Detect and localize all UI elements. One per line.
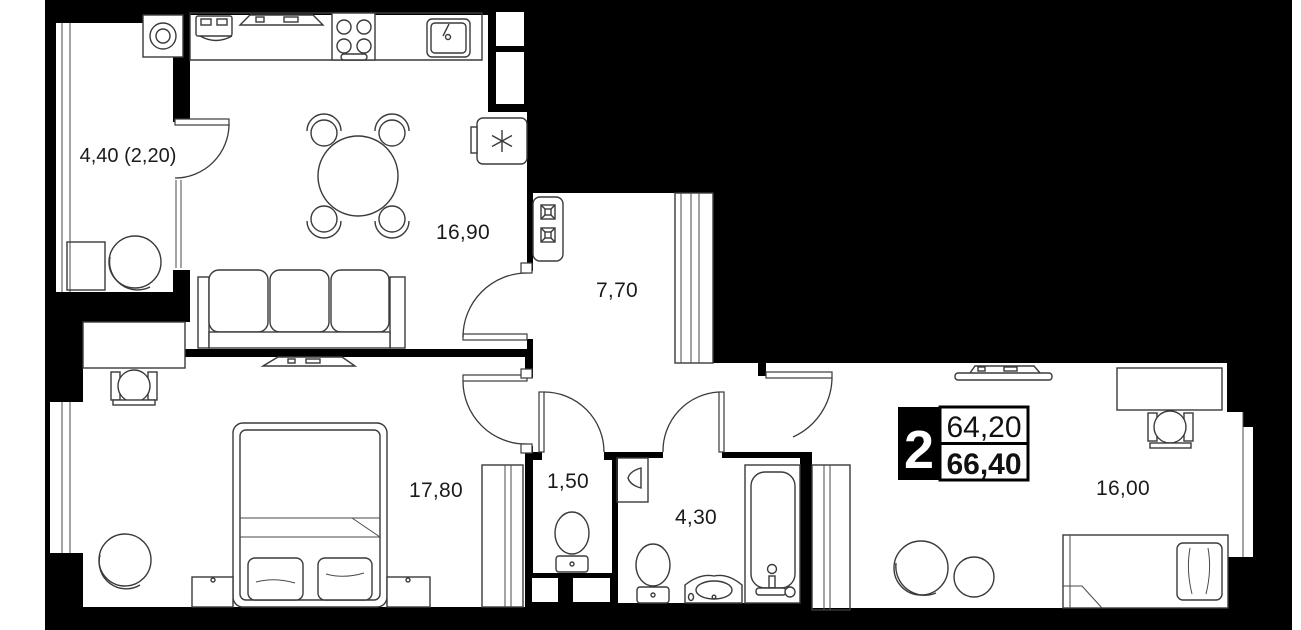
duct-niche-1 — [496, 12, 524, 46]
pillow-icon — [318, 558, 372, 600]
bathroom-door-leaf — [719, 392, 724, 452]
toilet-tank — [637, 587, 669, 603]
sofa-arm-right — [390, 277, 405, 348]
dining-chair-icon — [379, 206, 405, 232]
shaft-opening-right — [573, 578, 610, 602]
pillow-icon — [1177, 543, 1222, 600]
sofa-cushion — [209, 270, 268, 332]
single-bed-icon — [1063, 535, 1228, 608]
oven-handle — [341, 54, 367, 60]
wc-furniture — [555, 512, 589, 572]
bathroom-door-opening — [663, 449, 722, 460]
desk-chair-icon — [111, 370, 157, 405]
toilet-icon — [555, 512, 589, 554]
sofa-arm-left — [198, 277, 209, 348]
chair-seat — [1154, 411, 1186, 443]
balcony-door-leaf — [175, 119, 229, 125]
range-hood-icon — [240, 15, 323, 25]
bedroom2-window-inner — [1227, 412, 1243, 557]
sofa-icon — [198, 270, 405, 348]
balcony-kitchen-wall-bottom — [173, 270, 190, 322]
bedroom1-door-leaf — [463, 375, 527, 381]
tv-bar — [955, 373, 1052, 380]
living-door-opening — [525, 271, 535, 339]
washing-machine-icon — [143, 15, 183, 57]
duct-niche-2 — [496, 52, 524, 104]
desk-chair-icon — [1148, 411, 1193, 448]
shaft-opening-left — [532, 578, 558, 602]
dining-chair-icon — [311, 120, 337, 146]
chair-seat — [118, 370, 150, 402]
wc-door-leaf — [539, 392, 544, 452]
badge-area-bottom: 66,40 — [946, 448, 1021, 481]
room-label-kitchen: 16,90 — [436, 221, 490, 244]
bedroom1-window — [50, 402, 83, 553]
toilet-tank — [556, 556, 588, 572]
chair-base — [1150, 443, 1191, 448]
dining-table-icon — [318, 136, 398, 216]
cooktop-icon — [332, 13, 375, 60]
badge-area-top: 64,20 — [946, 411, 1021, 444]
living-door-leaf — [463, 334, 527, 340]
dining-chair-icon — [311, 206, 337, 232]
sofa-seat-front — [209, 332, 390, 348]
bedroom1-nook-floor — [83, 322, 185, 607]
tub-faucet-head — [785, 587, 795, 597]
chair-base — [113, 400, 155, 405]
floor-plan-page: 4,40 (2,20) 16,90 7,70 17,80 1,50 4,30 1… — [0, 0, 1301, 630]
room-label-bedroom1: 17,80 — [409, 479, 463, 502]
room-label-bedroom2: 16,00 — [1096, 477, 1150, 500]
room-label-balcony: 4,40 (2,20) — [80, 145, 177, 167]
toilet-icon — [636, 544, 670, 586]
dining-chair-icon — [379, 120, 405, 146]
living-door-frame-top — [521, 263, 532, 273]
washbasin-icon — [685, 575, 742, 603]
tub-faucet — [756, 588, 786, 595]
fridge-hinge — [471, 127, 477, 153]
bedroom1-door-frame-bottom — [521, 444, 532, 453]
sofa-cushion — [270, 270, 329, 332]
pillow-icon — [248, 558, 303, 600]
bedroom2-door-jamb — [758, 363, 766, 376]
room-label-wc: 1,50 — [547, 470, 589, 493]
wc-door-opening — [542, 449, 604, 462]
apartment-info-badge: 2 64,20 66,40 — [898, 407, 1028, 481]
bedroom2-window-outer — [1243, 427, 1253, 557]
sofa-cushion — [331, 270, 389, 332]
bedroom1-door-opening — [523, 378, 535, 446]
badge-rooms-count: 2 — [904, 420, 934, 480]
double-bed-icon — [233, 423, 387, 607]
room-label-bathroom: 4,30 — [675, 506, 717, 529]
floor-plan: 4,40 (2,20) 16,90 7,70 17,80 1,50 4,30 1… — [0, 0, 1301, 630]
bedroom1-door-frame-top — [521, 369, 532, 378]
bedroom2-door-leaf — [766, 372, 832, 378]
room-label-hallway: 7,70 — [596, 279, 638, 302]
